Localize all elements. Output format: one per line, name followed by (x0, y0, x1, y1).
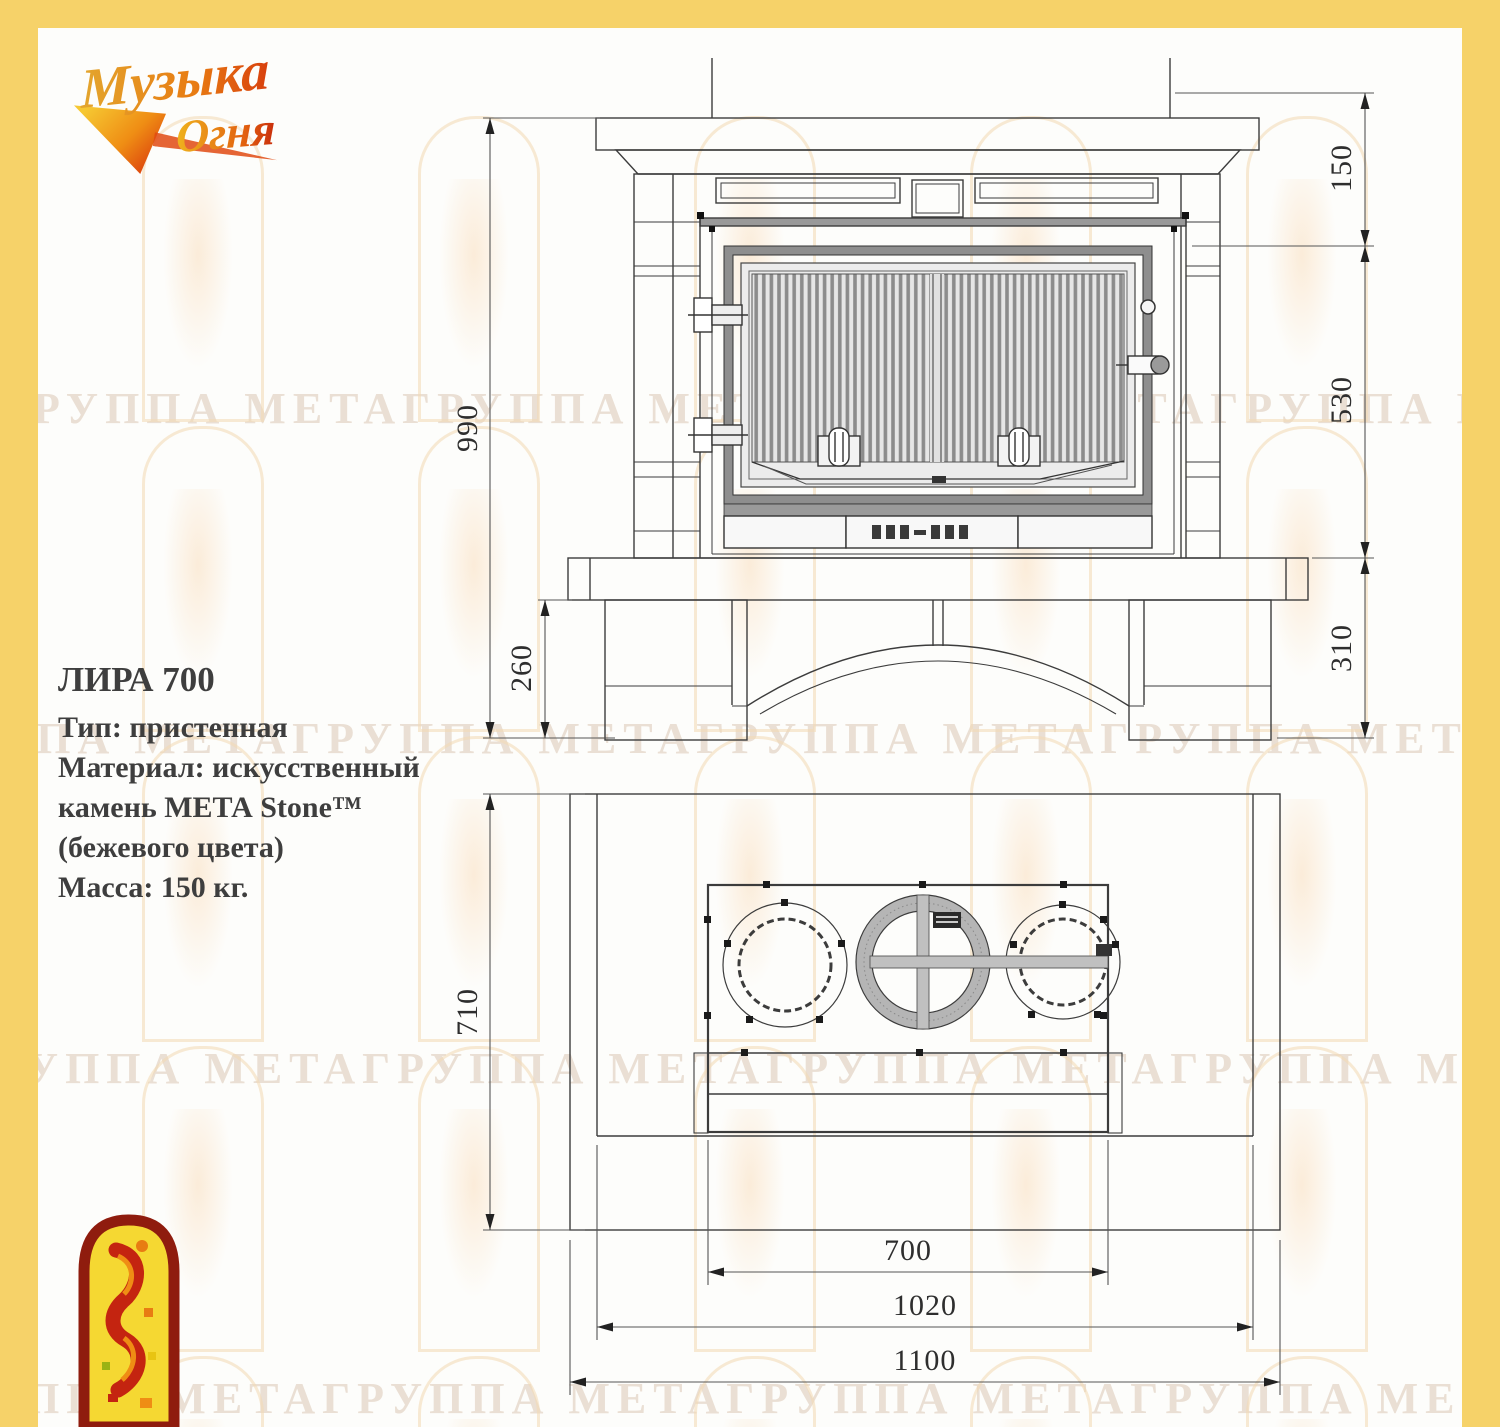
mantel-shelf (596, 118, 1259, 150)
model-title: ЛИРА 700 (58, 660, 488, 700)
frame-top (0, 0, 1500, 28)
spec-block: ЛИРА 700 Тип: пристенная Материал: искус… (58, 660, 488, 908)
firebox-insert (688, 212, 1189, 558)
base-legs (605, 600, 1271, 740)
spec-material-2: камень МЕТА Stone™ (58, 788, 488, 828)
door-hinge-bottom (688, 418, 748, 452)
fire-dancer-icon (78, 1212, 180, 1427)
dim-mantel-height: 150 (1325, 144, 1358, 192)
front-view (568, 58, 1308, 740)
spec-color: (бежевого цвета) (58, 828, 488, 868)
dim-firebox-height: 530 (1325, 376, 1358, 424)
door-hinge-top (688, 298, 748, 332)
frieze-center-block (912, 180, 963, 217)
logo-word-2: Огня (176, 102, 276, 164)
spec-weight: Масса: 150 кг. (58, 868, 488, 908)
dim-firebox-width: 700 (884, 1234, 932, 1267)
meta-emblem (78, 1212, 180, 1427)
mantel-molding (616, 150, 1240, 174)
dim-hearth-height: 260 (505, 644, 538, 692)
spec-material-1: Материал: искусственный (58, 748, 488, 788)
dim-base-height: 310 (1325, 624, 1358, 672)
frieze-panels (716, 178, 1158, 217)
plan-outlet-left (723, 903, 847, 1027)
base-arch (747, 645, 1129, 706)
plan-view (570, 794, 1280, 1230)
door-latch-pin (1141, 300, 1155, 314)
hearth-slab (568, 558, 1308, 600)
dim-overall-width: 1100 (894, 1344, 957, 1377)
frame-left (0, 0, 38, 1427)
plan-damper-cross (870, 895, 1112, 1029)
dim-depth: 710 (451, 988, 484, 1036)
brand-logo: Музыка Огня (58, 46, 318, 191)
dim-body-width: 1020 (893, 1289, 957, 1322)
frame-right (1462, 0, 1500, 1427)
dim-overall-height: 990 (451, 404, 484, 452)
spec-sheet-page: ГРУППА МЕТАГРУППА МЕТАГРУППА МЕТАГРУППА … (0, 0, 1500, 1427)
spec-type: Тип: пристенная (58, 708, 488, 748)
